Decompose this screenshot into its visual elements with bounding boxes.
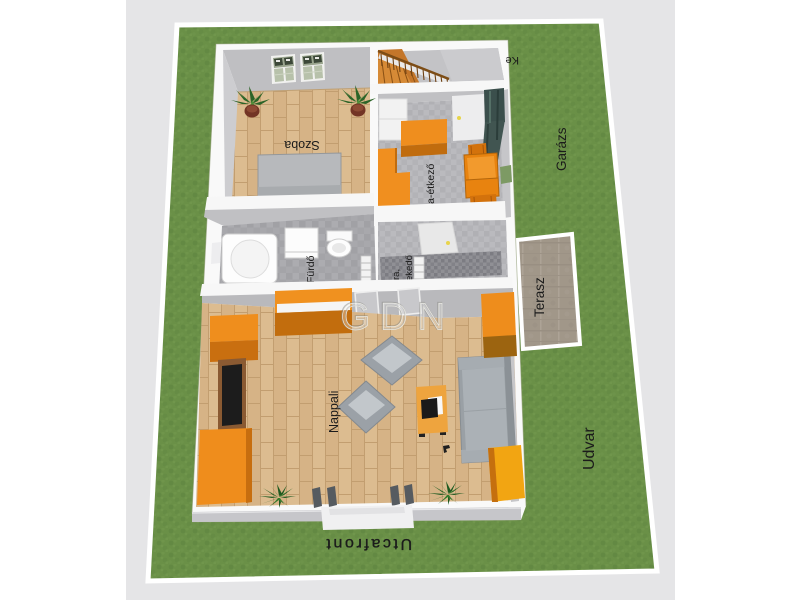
svg-text:Terasz: Terasz — [532, 277, 547, 317]
svg-text:Nappali: Nappali — [327, 391, 341, 433]
svg-text:Fürdő: Fürdő — [305, 255, 317, 283]
svg-text:Szoba: Szoba — [284, 138, 319, 152]
svg-text:ra,: ra, — [391, 269, 402, 280]
svg-text:Ke: Ke — [506, 54, 519, 66]
svg-text:Garázs: Garázs — [554, 127, 569, 171]
svg-text:GDN: GDN — [341, 297, 455, 339]
svg-text:ekedő: ekedő — [404, 255, 415, 281]
svg-text:Udvar: Udvar — [581, 427, 598, 470]
svg-text:Utcafront: Utcafront — [324, 535, 412, 552]
